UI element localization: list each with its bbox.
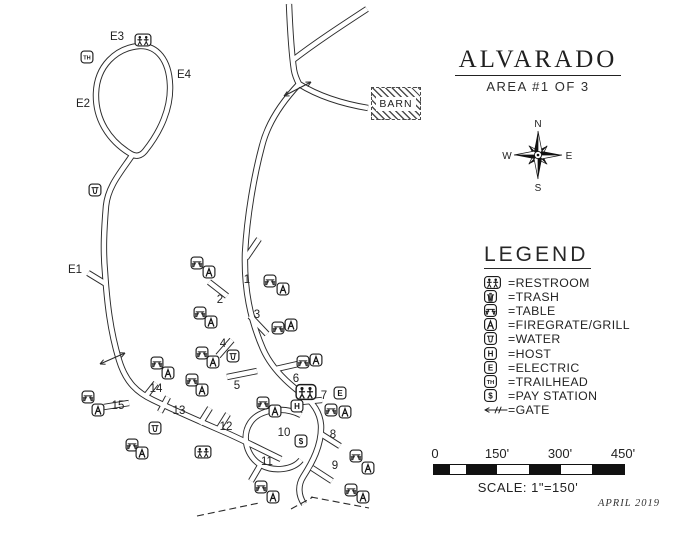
table-icon — [255, 481, 267, 493]
barn-label: BARN — [376, 97, 415, 111]
site-label-2: 2 — [217, 294, 223, 306]
firegrate-icon — [92, 404, 104, 416]
trailhead-icon: TH — [81, 51, 93, 63]
table-icon — [257, 397, 269, 409]
table-icon — [325, 404, 337, 416]
table-icon — [264, 275, 276, 287]
legend-item-label: =TRASH — [508, 290, 559, 304]
firegrate-icon — [269, 405, 281, 417]
restroom-icon — [135, 34, 151, 46]
firegrate-icon — [339, 406, 351, 418]
water-icon — [227, 350, 239, 362]
firegrate-icon — [357, 491, 369, 503]
road-surface — [301, 400, 322, 402]
host-icon: H — [484, 347, 508, 361]
scale-tick-labels: 0150'300'450' — [425, 446, 670, 460]
scale-segment — [466, 465, 498, 474]
map-date: APRIL 2019 — [555, 498, 660, 509]
road-surface — [96, 46, 170, 156]
road-surface — [293, 9, 367, 60]
restroom-icon — [195, 446, 211, 458]
road-surface — [104, 154, 281, 459]
site-label-11: 11 — [261, 456, 273, 468]
scale-text: SCALE: 1"=150' — [433, 480, 623, 495]
restroom-icon — [484, 276, 508, 290]
svg-text:H: H — [294, 402, 300, 411]
pay-icon: $ — [484, 389, 508, 403]
legend-item-pay: $=PAY STATION — [484, 389, 684, 403]
compass-letter-e: E — [566, 151, 573, 162]
legend-item-table: =TABLE — [484, 304, 684, 318]
legend-item-label: =TABLE — [508, 304, 556, 318]
gate-icon — [484, 404, 508, 416]
table-icon — [350, 450, 362, 462]
title-block: ALVARADO AREA #1 OF 3 — [440, 46, 636, 94]
table-icon — [196, 347, 208, 359]
svg-text:E: E — [337, 389, 343, 398]
scale-tick-0: 0 — [431, 446, 438, 461]
table-icon — [186, 374, 198, 386]
firegrate-icon — [162, 367, 174, 379]
site-label-5: 5 — [234, 380, 240, 392]
legend-item-label: =HOST — [508, 347, 551, 361]
road-surface — [312, 468, 332, 481]
compass-letter-s: S — [535, 183, 542, 194]
scale-tick-3: 450' — [611, 446, 635, 461]
site-label-E3: E3 — [110, 31, 124, 43]
legend-item-label: =WATER — [508, 332, 561, 346]
legend-item-water: =WATER — [484, 332, 684, 346]
table-icon — [82, 391, 94, 403]
legend-title: LEGEND — [484, 243, 591, 269]
water-icon — [484, 332, 508, 346]
site-label-10: 10 — [278, 427, 291, 439]
firegrate-icon — [205, 316, 217, 328]
scale-segment — [592, 465, 624, 474]
site-label-6: 6 — [293, 373, 299, 385]
page-title: ALVARADO — [455, 46, 622, 76]
legend-item-label: =FIREGRATE/GRILL — [508, 318, 630, 332]
svg-text:H: H — [488, 349, 494, 358]
electric-icon: E — [334, 387, 346, 399]
scale-segment — [434, 465, 450, 474]
water-icon — [149, 422, 161, 434]
electric-icon: E — [484, 361, 508, 375]
compass-rose: NESW — [502, 119, 572, 194]
firegrate-icon — [362, 462, 374, 474]
compass-letter-w: W — [502, 151, 512, 162]
road-outline — [104, 154, 281, 459]
site-label-15: 15 — [112, 400, 125, 412]
road-surface — [227, 371, 257, 377]
svg-text:TH: TH — [487, 380, 494, 386]
scale-bar — [433, 464, 625, 475]
firegrate-icon — [310, 354, 322, 366]
firegrate-icon — [484, 318, 508, 332]
legend-item-trailhead: TH=TRAILHEAD — [484, 375, 684, 389]
svg-text:E: E — [488, 363, 494, 372]
table-icon — [297, 356, 309, 368]
table-icon — [194, 307, 206, 319]
legend-panel: LEGEND =RESTROOM=TRASH=TABLE=FIREGRATE/G… — [484, 243, 684, 417]
water-icon — [89, 184, 101, 196]
legend-item-trash: =TRASH — [484, 290, 684, 304]
host-icon: H — [291, 400, 303, 412]
barn-building: BARN — [371, 87, 421, 120]
site-label-12: 12 — [220, 421, 233, 433]
map-document: NESWTHEH$E3E4E2E1123456789101112131415 B… — [0, 0, 700, 541]
legend-item-host: H=HOST — [484, 346, 684, 360]
compass-letter-n: N — [534, 119, 541, 130]
firegrate-icon — [203, 266, 215, 278]
legend-item-restroom: =RESTROOM — [484, 276, 684, 290]
scale-tick-1: 150' — [485, 446, 509, 461]
table-icon — [345, 484, 357, 496]
road-surface — [246, 410, 301, 469]
site-label-4: 4 — [220, 338, 227, 350]
scale-segment — [497, 465, 529, 474]
legend-item-gate: =GATE — [484, 403, 684, 417]
firegrate-icon — [267, 491, 279, 503]
firegrate-icon — [136, 447, 148, 459]
svg-text:TH: TH — [83, 55, 90, 61]
legend-item-label: =PAY STATION — [508, 389, 597, 403]
firegrate-icon — [207, 356, 219, 368]
table-icon — [484, 304, 508, 318]
legend-item-label: =ELECTRIC — [508, 361, 580, 375]
legend-item-electric: E=ELECTRIC — [484, 361, 684, 375]
legend-item-label: =GATE — [508, 403, 550, 417]
scale-segment — [529, 465, 561, 474]
legend-list: =RESTROOM=TRASH=TABLE=FIREGRATE/GRILL=WA… — [484, 276, 684, 417]
pay-icon: $ — [295, 435, 307, 447]
scale-tick-2: 300' — [548, 446, 572, 461]
svg-text:$: $ — [299, 437, 304, 446]
legend-item-label: =TRAILHEAD — [508, 375, 588, 389]
table-icon — [151, 357, 163, 369]
firegrate-icon — [285, 319, 297, 331]
table-icon — [272, 322, 284, 334]
road-surface — [299, 84, 368, 108]
table-icon — [191, 257, 203, 269]
restroom-icon — [296, 385, 316, 400]
site-label-E2: E2 — [76, 98, 90, 110]
scale-segment — [561, 465, 593, 474]
site-label-7: 7 — [321, 390, 327, 402]
trailhead-icon: TH — [484, 375, 508, 389]
site-label-8: 8 — [330, 429, 336, 441]
site-label-9: 9 — [332, 460, 338, 472]
site-label-1: 1 — [244, 274, 250, 286]
site-label-E1: E1 — [68, 264, 82, 276]
trash-icon — [484, 290, 508, 304]
road-surface — [276, 364, 298, 369]
site-label-14: 14 — [150, 383, 163, 395]
firegrate-icon — [196, 384, 208, 396]
site-label-13: 13 — [173, 405, 186, 417]
site-label-E4: E4 — [177, 69, 192, 81]
scale-segment — [450, 465, 466, 474]
site-label-3: 3 — [254, 309, 260, 321]
firegrate-icon — [277, 283, 289, 295]
trail-dashes — [197, 503, 259, 516]
legend-item-firegrate: =FIREGRATE/GRILL — [484, 318, 684, 332]
scale-bar-area: 0150'300'450' SCALE: 1"=150' APRIL 2019 — [425, 446, 670, 516]
page-subtitle: AREA #1 OF 3 — [440, 79, 636, 94]
svg-text:$: $ — [488, 391, 493, 400]
legend-item-label: =RESTROOM — [508, 276, 590, 290]
